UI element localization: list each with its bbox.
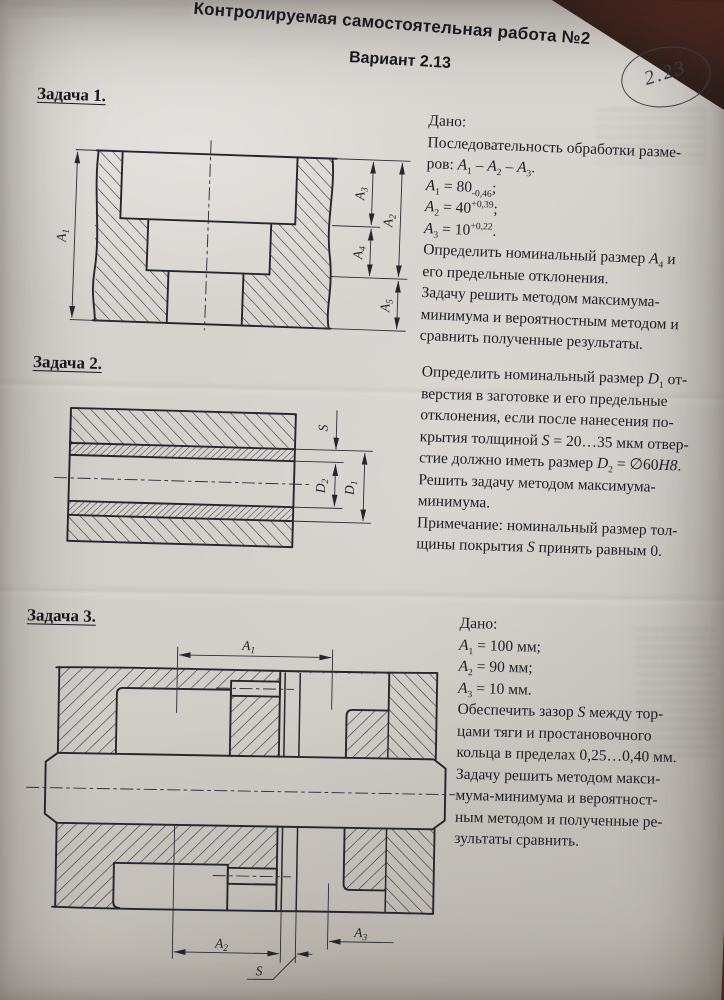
task2-heading: Задача 2. [33,352,103,374]
dimension-lines [334,410,366,521]
grade-stamp-value: 2.23 [620,50,711,98]
centerline [54,477,310,484]
task2-text: Определить номинальный размер D1 от-верс… [416,361,724,564]
dim-label-a4: A4 [350,246,368,261]
housing-top-hatched [58,667,389,759]
shaft-centerline [26,787,455,794]
dim-label-a2: A2 [380,214,398,229]
task2-drawing: S D2 D1 [40,387,395,577]
dim-label-a1: A1 [53,228,71,243]
dim-line-a4 [369,229,371,276]
part-boundary [388,711,389,759]
housing-top-right-hatched [388,673,437,760]
rod-centerline-bottom [213,876,291,877]
dim-line-a1 [72,152,78,318]
gap-edges-bottom [281,827,297,911]
photo-of-worksheet: Контролируемая самостоятельная работа №2… [0,0,724,1000]
dim-line-d2 [334,464,335,506]
dim-line-a3 [371,162,373,225]
dim-label-a2: A2 [214,936,229,954]
worksheet-content: Контролируемая самостоятельная работа №2… [0,0,724,1000]
task1-drawing: A1 A3 A4 A2 A5 [24,118,431,342]
dim-line-a2 [398,163,402,277]
dim-label-d1: D1 [342,480,360,496]
extension-lines [172,647,332,964]
dim-label-s: S [256,963,263,978]
task3-text: Дано:A1 = 100 мм;A2 = 90 мм;A3 = 10 мм.О… [454,613,724,856]
dim-line-s [336,410,337,449]
extension-lines [293,449,373,523]
housing-bottom-right-hatched [385,829,434,914]
dim-label-a5: A5 [377,299,395,314]
dim-label-s: S [315,424,330,431]
housing-bottom-hatched [55,823,386,913]
task1-heading: Задача 1. [37,84,107,106]
dim-line-a5 [397,281,399,329]
centerline [204,140,211,330]
s-leader-line [273,956,296,980]
sleeve-hatched-walls [67,408,296,547]
dim-label-a3: A3 [352,187,370,202]
gap-edges-top [284,673,300,757]
dim-line-d1 [363,453,365,521]
dim-label-a1: A1 [241,638,255,656]
dim-label-d2: D2 [313,478,331,494]
part-hatched-section [92,150,335,328]
variant-subtitle: Вариант 2.13 [250,43,551,79]
task3-drawing: A1 A2 A3 S [15,614,466,992]
dim-label-a3: A3 [353,925,368,943]
task1-text: Дано:Последовательность обработки разме-… [419,110,724,358]
page-title: Контролируемая самостоятельная работа №2 [86,0,698,57]
